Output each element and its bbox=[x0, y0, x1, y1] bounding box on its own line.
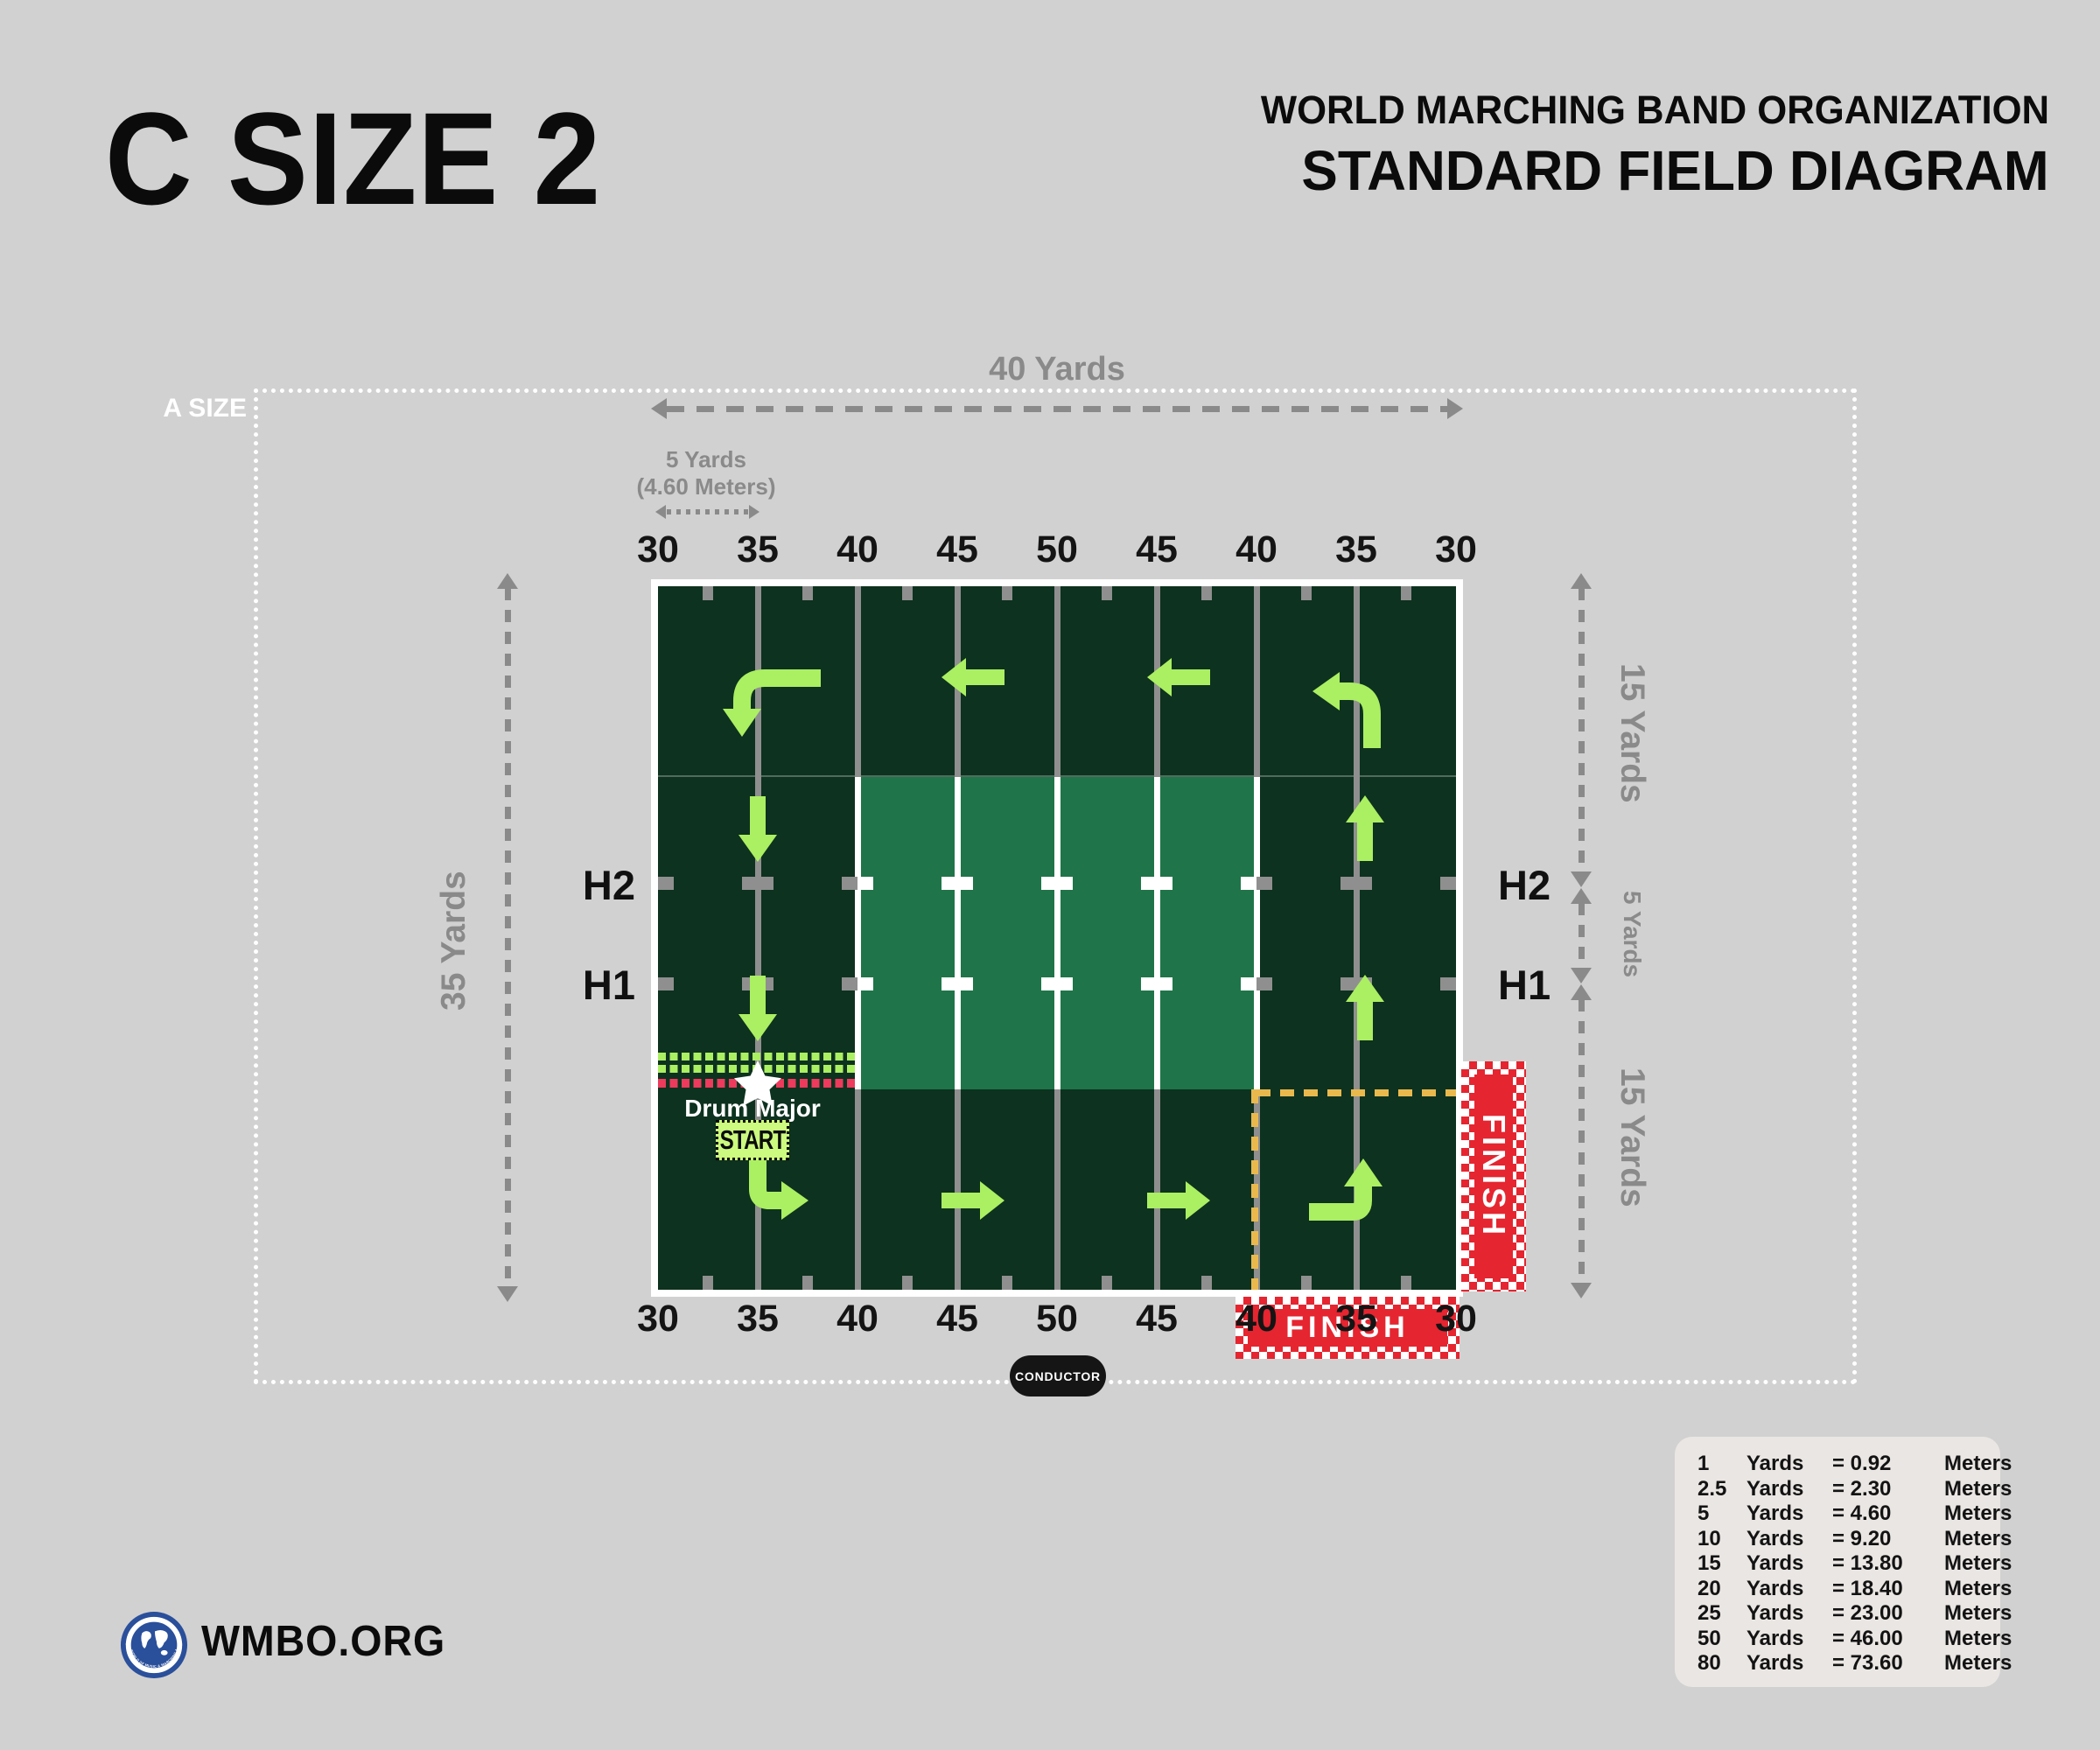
top-width-label: 40 Yards bbox=[651, 351, 1463, 388]
yard-number: 50 bbox=[1015, 528, 1099, 571]
arrowhead-down-icon bbox=[1571, 968, 1592, 983]
yard-number: 40 bbox=[815, 1298, 899, 1340]
yard-number: 40 bbox=[1214, 528, 1298, 571]
table-row: 10Yards= 9.20Meters bbox=[1697, 1527, 2000, 1552]
five-yard-label: 5 Yards (4.60 Meters) bbox=[614, 446, 798, 500]
finish-banner-side: FINISH bbox=[1461, 1061, 1526, 1291]
top-width-arrow bbox=[667, 406, 1447, 412]
diagram-subtitle: STANDARD FIELD DIAGRAM bbox=[1302, 138, 2049, 203]
hash-label-right-h2: H2 bbox=[1498, 861, 1550, 909]
conversion-table: 1Yards= 0.92Meters 2.5Yards= 2.30Meters … bbox=[1675, 1437, 2000, 1687]
yard-number: 35 bbox=[716, 1298, 800, 1340]
arrowhead-down-icon bbox=[497, 1286, 518, 1302]
table-row: 20Yards= 18.40Meters bbox=[1697, 1577, 2000, 1602]
table-row: 50Yards= 46.00Meters bbox=[1697, 1627, 2000, 1652]
field-surface bbox=[658, 586, 1456, 1290]
yard-number: 50 bbox=[1015, 1298, 1099, 1340]
hash-label-right-h1: H1 bbox=[1498, 961, 1550, 1009]
org-name: WORLD MARCHING BAND ORGANIZATION bbox=[1261, 87, 2049, 133]
yard-number: 45 bbox=[915, 528, 999, 571]
five-yard-label-line1: 5 Yards bbox=[614, 446, 798, 473]
arrowhead-down-icon bbox=[1571, 1283, 1592, 1298]
start-label: START bbox=[720, 1124, 786, 1156]
arrowhead-up-icon bbox=[497, 573, 518, 589]
right-top-arrow bbox=[1578, 588, 1585, 871]
hash-label-left-h2: H2 bbox=[490, 861, 635, 909]
yard-number: 30 bbox=[1414, 528, 1498, 571]
arrowhead-right-icon bbox=[1447, 398, 1463, 419]
website-url: WMBO.ORG bbox=[201, 1617, 445, 1666]
yard-number: 40 bbox=[1214, 1298, 1298, 1340]
yard-number: 35 bbox=[1314, 528, 1398, 571]
yard-number: 45 bbox=[1115, 1298, 1199, 1340]
table-row: 25Yards= 23.00Meters bbox=[1697, 1601, 2000, 1627]
right-bottom-label: 15 Yards bbox=[1608, 997, 1655, 1277]
five-yard-arrow bbox=[667, 509, 749, 514]
finish-side-label: FINISH bbox=[1475, 1114, 1512, 1238]
field-diagram-page: C SIZE 2 WORLD MARCHING BAND ORGANIZATIO… bbox=[0, 0, 2100, 1750]
table-row: 5Yards= 4.60Meters bbox=[1697, 1501, 2000, 1527]
start-badge: START bbox=[716, 1120, 789, 1160]
table-row: 80Yards= 73.60Meters bbox=[1697, 1651, 2000, 1676]
right-mid-arrow bbox=[1578, 903, 1585, 968]
five-yard-label-line2: (4.60 Meters) bbox=[614, 473, 798, 500]
left-height-label: 35 Yards bbox=[430, 805, 478, 1076]
arrowhead-left-icon bbox=[651, 398, 667, 419]
arrowhead-up-icon bbox=[1571, 888, 1592, 904]
conductor-label: CONDUCTOR bbox=[1015, 1369, 1101, 1383]
yard-number: 30 bbox=[616, 1298, 700, 1340]
yard-number: 35 bbox=[716, 528, 800, 571]
table-row: 1Yards= 0.92Meters bbox=[1697, 1452, 2000, 1477]
arrowhead-up-icon bbox=[1571, 573, 1592, 589]
hash-label-left-h1: H1 bbox=[490, 961, 635, 1009]
yard-number: 35 bbox=[1314, 1298, 1398, 1340]
table-row: 15Yards= 13.80Meters bbox=[1697, 1551, 2000, 1577]
yard-number: 45 bbox=[1115, 528, 1199, 571]
page-title: C SIZE 2 bbox=[105, 83, 601, 234]
yard-number: 30 bbox=[1414, 1298, 1498, 1340]
yard-number: 45 bbox=[915, 1298, 999, 1340]
right-mid-label: 5 Yards bbox=[1612, 880, 1652, 989]
conductor-badge: CONDUCTOR bbox=[1010, 1355, 1106, 1396]
left-height-arrow bbox=[505, 588, 511, 1286]
arrowhead-left-icon bbox=[655, 505, 666, 519]
arrowhead-up-icon bbox=[1571, 984, 1592, 1000]
marching-field bbox=[651, 579, 1463, 1297]
yard-number: 40 bbox=[815, 528, 899, 571]
yard-number: 30 bbox=[616, 528, 700, 571]
drum-major-label: Drum Major bbox=[647, 1095, 857, 1123]
wmbo-logo: WORLD MARCHING BAND ORGANIZATION THE WOR… bbox=[120, 1611, 188, 1679]
right-top-label: 15 Yards bbox=[1608, 593, 1655, 873]
table-row: 2.5Yards= 2.30Meters bbox=[1697, 1477, 2000, 1502]
arrowhead-down-icon bbox=[1571, 871, 1592, 887]
route-arrows bbox=[658, 586, 1456, 1290]
a-size-label: A SIZE bbox=[154, 394, 247, 423]
right-bottom-arrow bbox=[1578, 999, 1585, 1283]
arrowhead-right-icon bbox=[749, 505, 759, 519]
